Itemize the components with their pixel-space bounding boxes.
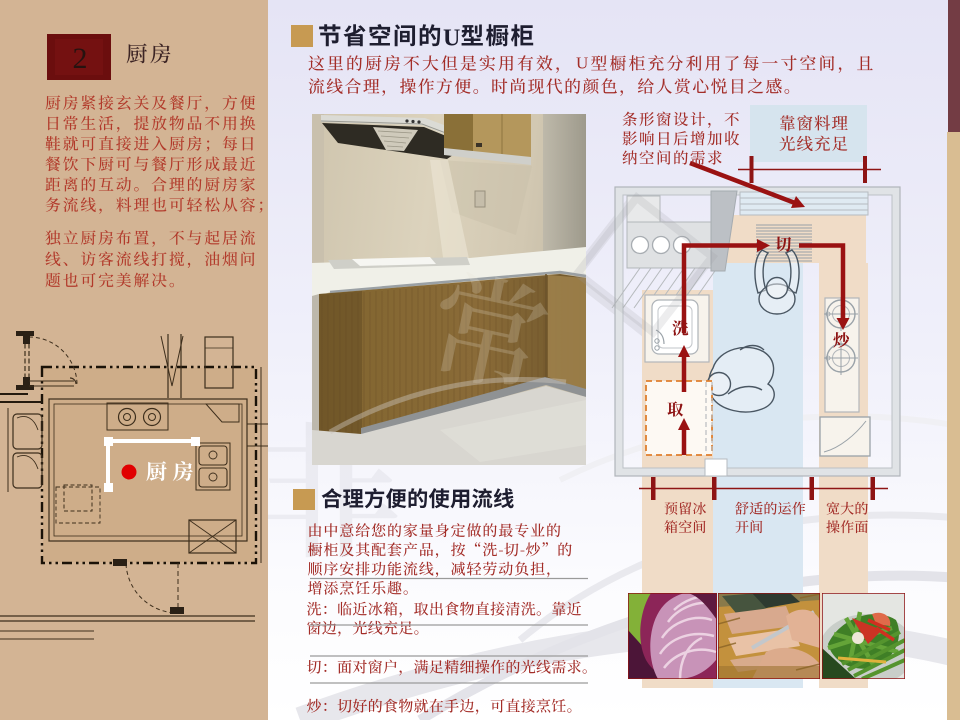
- svg-text:U: U: [576, 54, 588, 73]
- svg-text:U: U: [443, 26, 460, 52]
- svg-text:2: 2: [73, 42, 88, 75]
